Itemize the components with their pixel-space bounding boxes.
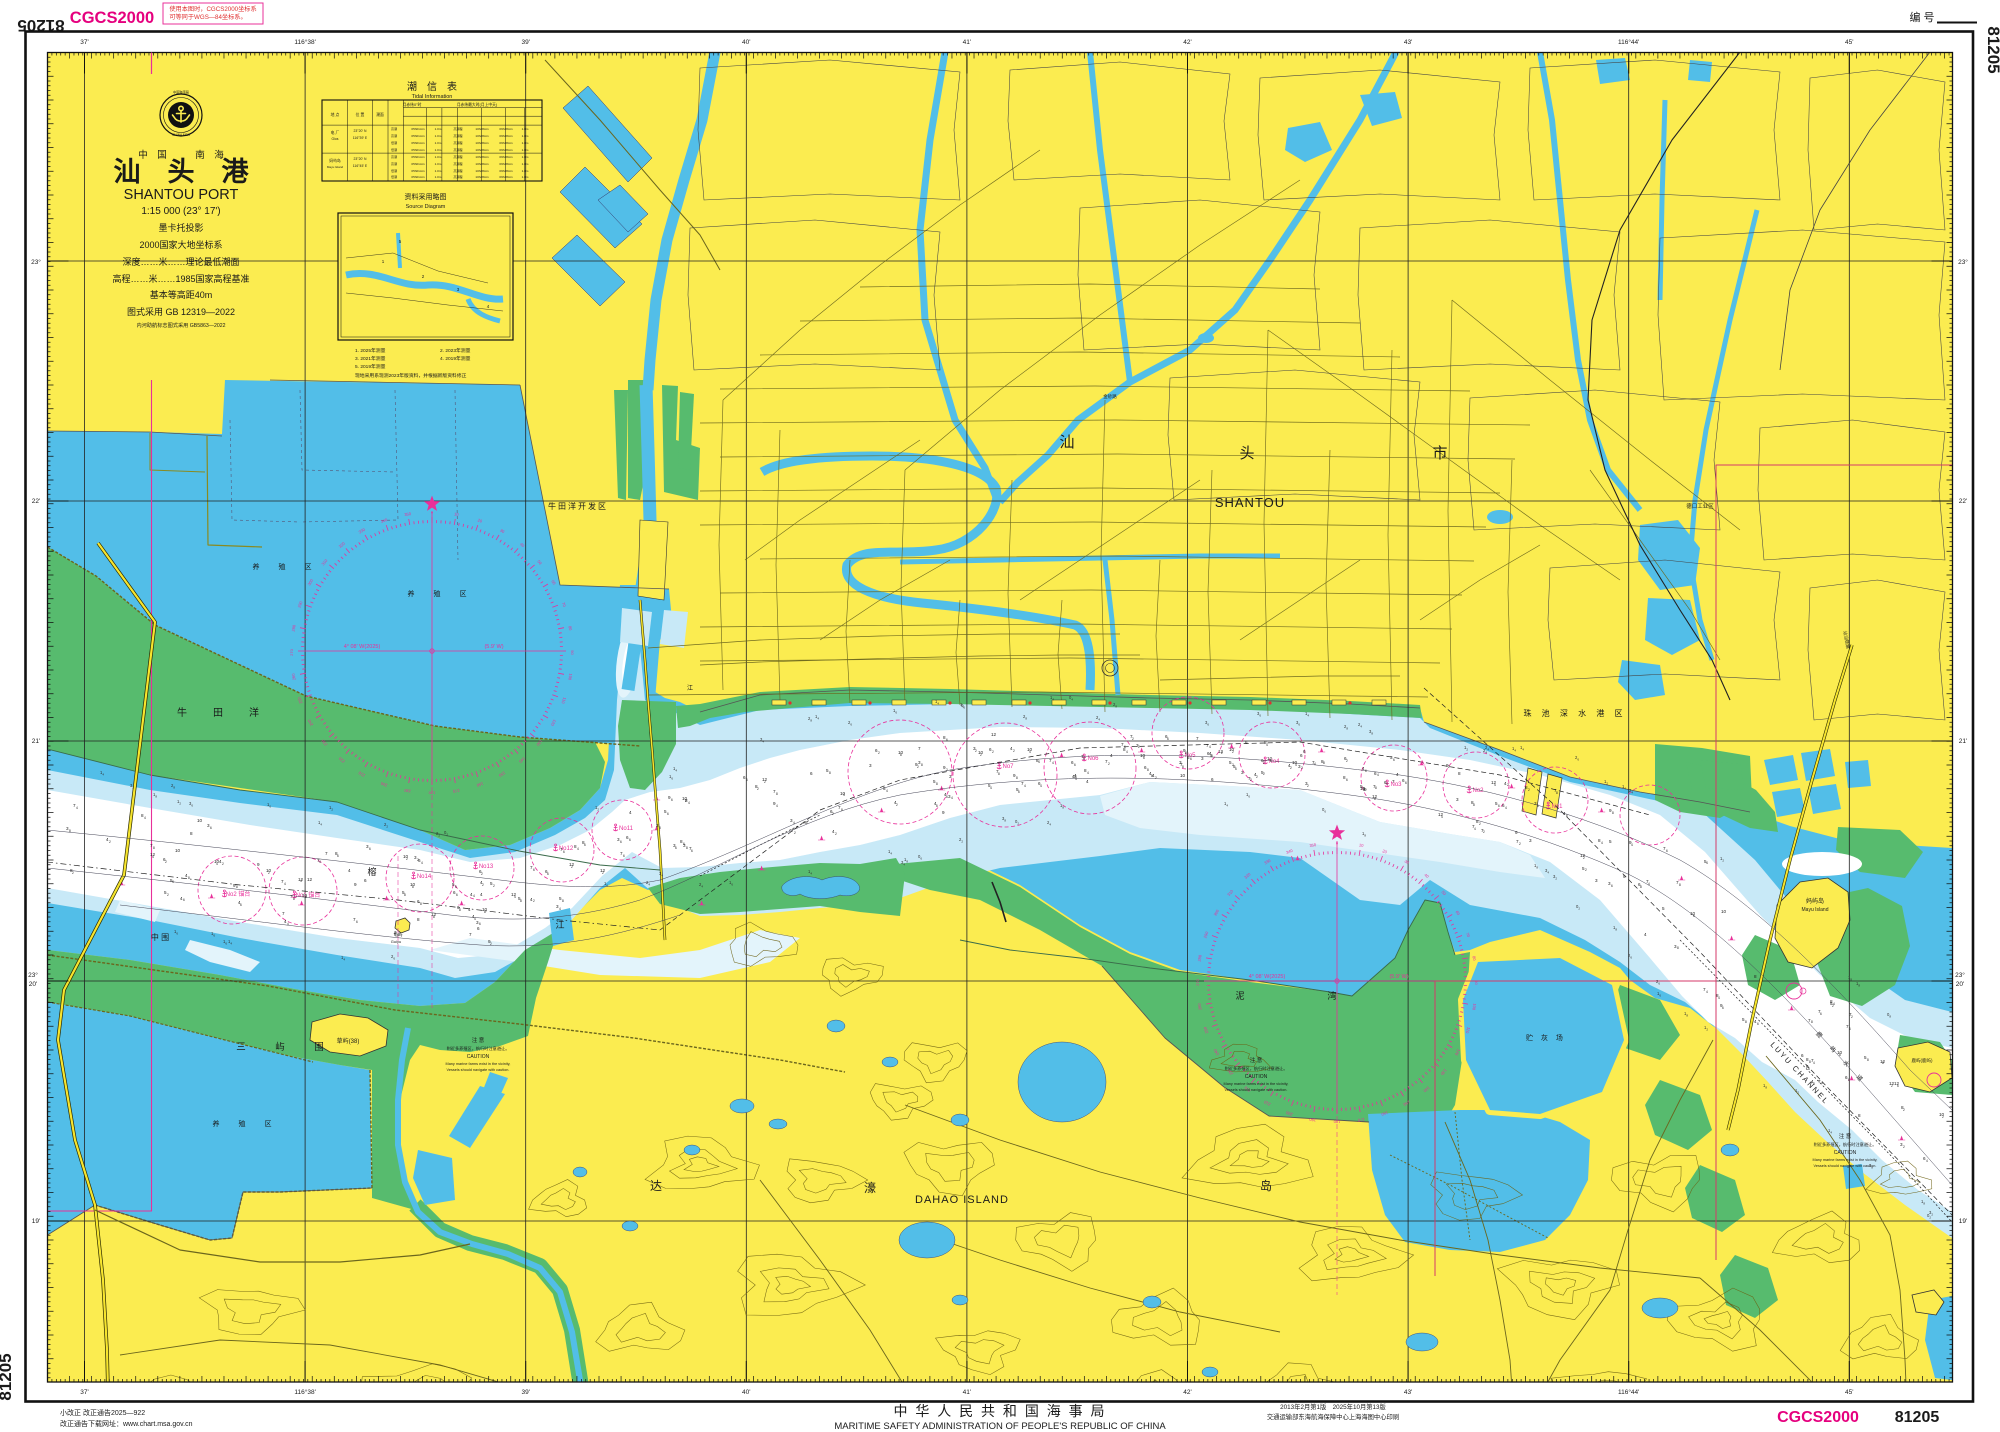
svg-text:6: 6 bbox=[1722, 1006, 1724, 1010]
svg-text:高潮程: 高潮程 bbox=[453, 154, 462, 159]
svg-text:4: 4 bbox=[1266, 743, 1268, 747]
svg-text:10: 10 bbox=[197, 818, 203, 823]
svg-text:编 号: 编 号 bbox=[1909, 10, 1934, 24]
svg-text:8: 8 bbox=[841, 808, 843, 812]
svg-text:23°20' N: 23°20' N bbox=[354, 157, 367, 161]
svg-text:8: 8 bbox=[1754, 974, 1757, 979]
svg-text:39': 39' bbox=[521, 39, 529, 46]
svg-text:5: 5 bbox=[805, 820, 808, 825]
svg-text:4: 4 bbox=[1441, 815, 1443, 819]
svg-text:1.0m: 1.0m bbox=[435, 148, 442, 152]
svg-text:中国海事局: 中国海事局 bbox=[173, 90, 189, 95]
svg-text:4: 4 bbox=[1210, 754, 1212, 758]
svg-text:No6: No6 bbox=[1087, 756, 1099, 762]
svg-text:8: 8 bbox=[1323, 761, 1325, 765]
svg-text:交通运输部东海航海保障中心上海海图中心印刷: 交通运输部东海航海保障中心上海海图中心印刷 bbox=[1267, 1412, 1399, 1421]
svg-text:使用本图时，CGCS2000坐标系: 使用本图时，CGCS2000坐标系 bbox=[169, 5, 256, 13]
svg-text:Tidal Information: Tidal Information bbox=[412, 94, 453, 100]
svg-text:10h28min: 10h28min bbox=[475, 162, 489, 166]
svg-text:116°45' E: 116°45' E bbox=[353, 164, 368, 168]
svg-text:4: 4 bbox=[1087, 771, 1089, 775]
svg-text:6: 6 bbox=[691, 849, 693, 853]
svg-text:8: 8 bbox=[900, 753, 902, 757]
svg-text:1.3m: 1.3m bbox=[522, 169, 529, 173]
svg-text:6: 6 bbox=[1124, 745, 1126, 749]
svg-text:09h48min: 09h48min bbox=[499, 134, 513, 138]
svg-text:附近多养殖区，航行时注意避让。: 附近多养殖区，航行时注意避让。 bbox=[1814, 1141, 1877, 1148]
svg-text:4: 4 bbox=[1631, 843, 1633, 847]
svg-text:养 殖 区: 养 殖 区 bbox=[213, 1119, 278, 1128]
svg-text:2: 2 bbox=[1250, 778, 1252, 782]
svg-text:81205: 81205 bbox=[1895, 1409, 1940, 1426]
svg-text:9: 9 bbox=[354, 882, 357, 887]
svg-text:附近多养殖区，航行时注意避让。: 附近多养殖区，航行时注意避让。 bbox=[1225, 1065, 1288, 1072]
svg-text:3: 3 bbox=[949, 774, 952, 779]
svg-text:4: 4 bbox=[559, 907, 561, 911]
svg-text:23°: 23° bbox=[1955, 971, 1965, 979]
svg-text:4: 4 bbox=[1110, 753, 1113, 758]
svg-text:8: 8 bbox=[417, 917, 420, 922]
svg-text:2: 2 bbox=[1891, 1084, 1893, 1088]
svg-text:江: 江 bbox=[687, 685, 693, 692]
svg-text:10: 10 bbox=[1721, 909, 1727, 914]
svg-text:7: 7 bbox=[325, 851, 328, 856]
svg-text:8: 8 bbox=[1083, 757, 1085, 761]
svg-text:8: 8 bbox=[459, 908, 461, 912]
svg-text:CHINA MSA: CHINA MSA bbox=[172, 133, 190, 137]
svg-text:4: 4 bbox=[1126, 750, 1128, 754]
svg-text:2: 2 bbox=[878, 751, 880, 755]
svg-text:1:15 000 (23° 17'): 1:15 000 (23° 17') bbox=[141, 206, 220, 217]
svg-text:6: 6 bbox=[936, 804, 938, 808]
svg-text:8: 8 bbox=[1882, 1061, 1884, 1065]
svg-text:现地采用系现测2023年版资料，并根据新版资料修正: 现地采用系现测2023年版资料，并根据新版资料修正 bbox=[355, 372, 467, 379]
svg-text:05h01min: 05h01min bbox=[411, 148, 425, 152]
svg-text:6: 6 bbox=[1303, 749, 1306, 754]
svg-text:6: 6 bbox=[667, 812, 669, 816]
svg-text:8: 8 bbox=[1640, 885, 1642, 889]
svg-text:6: 6 bbox=[810, 771, 813, 776]
svg-text:1.0m: 1.0m bbox=[435, 127, 442, 131]
svg-text:1.3m: 1.3m bbox=[522, 148, 529, 152]
svg-text:2: 2 bbox=[1942, 1115, 1944, 1119]
svg-text:中 华 人 民 共 和 国 海 事 局: 中 华 人 民 共 和 国 海 事 局 bbox=[893, 1403, 1106, 1419]
svg-text:41': 41' bbox=[963, 1389, 971, 1396]
svg-text:270: 270 bbox=[289, 648, 294, 655]
svg-text:高潮: 高潮 bbox=[391, 154, 397, 159]
svg-text:10h28min: 10h28min bbox=[475, 155, 489, 159]
svg-text:榕: 榕 bbox=[367, 866, 376, 877]
svg-text:7: 7 bbox=[282, 911, 285, 916]
svg-text:6: 6 bbox=[1018, 790, 1020, 794]
svg-text:8: 8 bbox=[1679, 883, 1681, 887]
svg-text:8: 8 bbox=[1016, 776, 1018, 780]
svg-text:6: 6 bbox=[210, 826, 212, 830]
svg-text:4: 4 bbox=[1386, 782, 1388, 786]
svg-text:42': 42' bbox=[1183, 1389, 1191, 1396]
svg-text:地 点: 地 点 bbox=[331, 112, 340, 117]
svg-text:头: 头 bbox=[1239, 445, 1254, 462]
svg-text:9: 9 bbox=[257, 862, 260, 867]
svg-text:1. 2025年测量: 1. 2025年测量 bbox=[355, 347, 386, 354]
svg-text:4° 08' W(2025): 4° 08' W(2025) bbox=[1249, 974, 1286, 980]
svg-text:养 殖 区: 养 殖 区 bbox=[253, 562, 318, 571]
svg-text:4: 4 bbox=[1494, 783, 1496, 787]
svg-text:高潮程: 高潮程 bbox=[453, 168, 462, 173]
svg-text:5. 2019年测量: 5. 2019年测量 bbox=[355, 363, 386, 370]
svg-text:6: 6 bbox=[547, 872, 549, 876]
svg-text:2: 2 bbox=[794, 831, 796, 835]
svg-text:37': 37' bbox=[80, 39, 88, 46]
svg-text:Guiyu: Guiyu bbox=[391, 939, 401, 944]
svg-text:草屿(38): 草屿(38) bbox=[337, 1037, 360, 1045]
svg-text:05h01min: 05h01min bbox=[411, 175, 425, 179]
svg-text:Mayu Island: Mayu Island bbox=[327, 165, 344, 169]
svg-text:改正通告下载网址：www.chart.msa.gov.cn: 改正通告下载网址：www.chart.msa.gov.cn bbox=[60, 1419, 193, 1428]
svg-text:8: 8 bbox=[404, 893, 406, 897]
svg-text:8: 8 bbox=[1473, 803, 1475, 807]
svg-text:4: 4 bbox=[1706, 990, 1708, 994]
svg-text:8: 8 bbox=[998, 772, 1000, 776]
svg-text:8: 8 bbox=[412, 885, 414, 889]
svg-text:6: 6 bbox=[1167, 737, 1169, 741]
svg-text:金砂路: 金砂路 bbox=[1103, 393, 1117, 400]
svg-text:Vessels should navigate with c: Vessels should navigate with caution. bbox=[1814, 1164, 1877, 1168]
svg-text:270: 270 bbox=[1195, 978, 1200, 985]
svg-text:5: 5 bbox=[1609, 839, 1612, 844]
svg-text:8: 8 bbox=[1848, 1078, 1850, 1082]
svg-text:8: 8 bbox=[293, 897, 295, 901]
svg-text:2: 2 bbox=[1583, 856, 1585, 860]
svg-text:2: 2 bbox=[72, 871, 74, 875]
svg-text:2: 2 bbox=[975, 749, 977, 753]
svg-text:2: 2 bbox=[1256, 775, 1258, 779]
svg-text:22': 22' bbox=[1959, 498, 1967, 505]
svg-text:6: 6 bbox=[1849, 1027, 1851, 1031]
svg-text:20': 20' bbox=[1956, 981, 1964, 988]
svg-text:高潮程: 高潮程 bbox=[453, 147, 462, 152]
svg-text:6: 6 bbox=[1498, 804, 1500, 808]
svg-text:4: 4 bbox=[1024, 784, 1026, 788]
svg-text:8: 8 bbox=[1813, 1082, 1815, 1086]
svg-text:8: 8 bbox=[776, 792, 778, 796]
svg-text:泥: 泥 bbox=[1235, 991, 1244, 1001]
svg-text:1.3m: 1.3m bbox=[522, 141, 529, 145]
svg-text:4: 4 bbox=[480, 892, 483, 897]
svg-text:4: 4 bbox=[1040, 784, 1042, 788]
svg-text:10h28min: 10h28min bbox=[475, 169, 489, 173]
svg-text:8: 8 bbox=[153, 846, 155, 850]
svg-text:2. 2023年测量: 2. 2023年测量 bbox=[440, 347, 471, 354]
svg-text:6: 6 bbox=[1211, 777, 1214, 782]
svg-text:CAUTION: CAUTION bbox=[1245, 1074, 1268, 1080]
svg-text:2: 2 bbox=[764, 780, 766, 784]
svg-text:2: 2 bbox=[268, 871, 270, 875]
svg-text:8: 8 bbox=[520, 899, 522, 903]
svg-text:2: 2 bbox=[1903, 1145, 1905, 1149]
svg-text:妈屿岛: 妈屿岛 bbox=[329, 158, 341, 163]
svg-text:6: 6 bbox=[746, 778, 748, 782]
svg-text:4: 4 bbox=[1718, 996, 1720, 1000]
svg-text:09h48min: 09h48min bbox=[499, 169, 513, 173]
svg-text:8: 8 bbox=[1182, 765, 1184, 769]
svg-text:2: 2 bbox=[917, 765, 919, 769]
svg-text:8: 8 bbox=[921, 763, 923, 767]
svg-text:低潮: 低潮 bbox=[391, 174, 397, 179]
svg-text:DAHAO ISLAND: DAHAO ISLAND bbox=[915, 1194, 1009, 1206]
svg-text:2: 2 bbox=[1108, 762, 1110, 766]
svg-text:6: 6 bbox=[1897, 1084, 1899, 1088]
svg-text:2: 2 bbox=[406, 857, 408, 861]
svg-text:2: 2 bbox=[167, 893, 169, 897]
svg-text:6: 6 bbox=[479, 922, 481, 926]
svg-text:7: 7 bbox=[469, 932, 472, 937]
svg-text:深度……米……理论最低潮面: 深度……米……理论最低潮面 bbox=[122, 256, 239, 267]
svg-text:2: 2 bbox=[685, 799, 687, 803]
svg-text:4: 4 bbox=[144, 816, 146, 820]
svg-text:6: 6 bbox=[369, 847, 371, 851]
svg-text:05h01min: 05h01min bbox=[411, 141, 425, 145]
svg-text:9: 9 bbox=[1623, 874, 1626, 879]
svg-text:21': 21' bbox=[32, 738, 40, 745]
svg-text:2: 2 bbox=[757, 787, 759, 791]
svg-text:8: 8 bbox=[936, 782, 938, 786]
svg-text:4: 4 bbox=[843, 793, 845, 797]
svg-text:6: 6 bbox=[183, 898, 185, 902]
svg-text:4: 4 bbox=[1813, 1061, 1815, 1065]
svg-text:4: 4 bbox=[1706, 861, 1708, 865]
svg-text:6: 6 bbox=[1270, 759, 1272, 763]
svg-text:2: 2 bbox=[832, 812, 834, 816]
svg-text:4: 4 bbox=[688, 801, 690, 805]
svg-text:6: 6 bbox=[1537, 804, 1539, 808]
svg-text:4: 4 bbox=[397, 933, 399, 937]
svg-text:高程……米……1985国家高程基准: 高程……米……1985国家高程基准 bbox=[112, 273, 249, 284]
svg-text:2: 2 bbox=[1221, 751, 1223, 755]
svg-text:37': 37' bbox=[80, 1389, 88, 1396]
svg-text:116°38': 116°38' bbox=[294, 38, 315, 46]
svg-text:鹿屿(鹿屿): 鹿屿(鹿屿) bbox=[1912, 1057, 1933, 1064]
svg-text:注 意: 注 意 bbox=[472, 1036, 485, 1044]
svg-text:6: 6 bbox=[1143, 756, 1145, 760]
svg-text:8: 8 bbox=[1147, 768, 1149, 772]
svg-text:6: 6 bbox=[946, 795, 948, 799]
svg-text:1.3m: 1.3m bbox=[522, 162, 529, 166]
svg-text:8: 8 bbox=[686, 846, 688, 850]
svg-text:8: 8 bbox=[420, 902, 422, 906]
svg-text:23°: 23° bbox=[1958, 258, 1968, 266]
svg-text:4: 4 bbox=[76, 806, 78, 810]
svg-text:4: 4 bbox=[776, 804, 778, 808]
svg-text:基本等高距40m: 基本等高距40m bbox=[150, 289, 213, 300]
svg-text:4: 4 bbox=[990, 786, 992, 790]
svg-text:10h28min: 10h28min bbox=[475, 175, 489, 179]
svg-text:市: 市 bbox=[1432, 445, 1447, 462]
svg-text:汕 头 港: 汕 头 港 bbox=[114, 157, 250, 187]
svg-text:1.0m: 1.0m bbox=[435, 175, 442, 179]
svg-text:牛 田 洋: 牛 田 洋 bbox=[177, 706, 267, 719]
svg-text:2: 2 bbox=[1528, 788, 1530, 792]
svg-text:1.3m: 1.3m bbox=[522, 155, 529, 159]
svg-text:高潮程: 高潮程 bbox=[453, 126, 462, 131]
svg-text:6: 6 bbox=[456, 893, 458, 897]
svg-text:4: 4 bbox=[1086, 779, 1089, 784]
svg-text:10h28min: 10h28min bbox=[475, 141, 489, 145]
svg-text:可等同于WGS—84坐标系。: 可等同于WGS—84坐标系。 bbox=[169, 13, 246, 21]
svg-text:6: 6 bbox=[240, 903, 242, 907]
svg-text:6: 6 bbox=[1190, 757, 1192, 761]
svg-text:2: 2 bbox=[1483, 830, 1485, 834]
svg-text:No1: No1 bbox=[1551, 804, 1563, 810]
svg-text:3: 3 bbox=[1201, 756, 1204, 761]
svg-text:6: 6 bbox=[671, 798, 673, 802]
svg-text:4: 4 bbox=[1505, 806, 1507, 810]
svg-text:1.0m: 1.0m bbox=[435, 169, 442, 173]
svg-text:2: 2 bbox=[992, 750, 994, 754]
svg-text:珠 池 深 水 港 区: 珠 池 深 水 港 区 bbox=[1523, 708, 1626, 718]
svg-text:10h28min: 10h28min bbox=[475, 148, 489, 152]
svg-text:3: 3 bbox=[1456, 797, 1459, 802]
svg-text:05h01min: 05h01min bbox=[411, 134, 425, 138]
svg-text:6: 6 bbox=[629, 838, 631, 842]
svg-text:2: 2 bbox=[1307, 784, 1309, 788]
svg-text:4: 4 bbox=[287, 922, 289, 926]
svg-text:6: 6 bbox=[1666, 849, 1668, 853]
svg-text:9: 9 bbox=[942, 810, 945, 815]
svg-text:注 意: 注 意 bbox=[1839, 1132, 1852, 1140]
svg-text:2: 2 bbox=[165, 860, 167, 864]
svg-text:7: 7 bbox=[1392, 779, 1395, 784]
svg-text:8: 8 bbox=[1858, 1113, 1861, 1118]
svg-text:4: 4 bbox=[1644, 932, 1647, 937]
svg-text:小改正 改正通告2025—922: 小改正 改正通告2025—922 bbox=[60, 1408, 145, 1417]
svg-text:8: 8 bbox=[1185, 751, 1187, 755]
svg-text:05h01min: 05h01min bbox=[411, 169, 425, 173]
svg-text:2: 2 bbox=[1851, 1015, 1853, 1019]
svg-text:4: 4 bbox=[319, 860, 321, 864]
svg-text:2: 2 bbox=[1138, 745, 1140, 749]
svg-text:2: 2 bbox=[602, 871, 604, 875]
svg-text:7: 7 bbox=[918, 746, 921, 751]
svg-text:4: 4 bbox=[577, 847, 579, 851]
svg-text:8: 8 bbox=[562, 899, 564, 903]
svg-text:6: 6 bbox=[563, 850, 565, 854]
svg-text:6: 6 bbox=[1405, 781, 1407, 785]
svg-text:4: 4 bbox=[1038, 760, 1040, 764]
svg-text:MARITIME SAFETY ADMINISTRATION: MARITIME SAFETY ADMINISTRATION OF PEOPLE… bbox=[834, 1421, 1166, 1432]
svg-text:6: 6 bbox=[623, 854, 625, 858]
svg-text:岛: 岛 bbox=[1260, 1178, 1272, 1193]
svg-text:180: 180 bbox=[1333, 1120, 1340, 1125]
svg-text:05h01min: 05h01min bbox=[411, 155, 425, 159]
svg-text:2: 2 bbox=[1903, 1108, 1905, 1112]
svg-text:3: 3 bbox=[869, 763, 872, 768]
svg-text:养 殖 区: 养 殖 区 bbox=[408, 589, 473, 598]
svg-text:2: 2 bbox=[109, 840, 111, 844]
svg-text:德口工业区: 德口工业区 bbox=[1686, 502, 1714, 510]
svg-text:23°20' N: 23°20' N bbox=[354, 129, 367, 133]
svg-text:2013年2月第1版 2025年10月第13版: 2013年2月第1版 2025年10月第13版 bbox=[1280, 1402, 1386, 1411]
svg-text:8: 8 bbox=[1612, 811, 1614, 815]
svg-text:10: 10 bbox=[175, 848, 181, 853]
svg-text:1.0m: 1.0m bbox=[435, 162, 442, 166]
svg-text:6: 6 bbox=[533, 868, 535, 872]
svg-text:2: 2 bbox=[222, 862, 224, 866]
svg-text:81205: 81205 bbox=[0, 1353, 15, 1400]
svg-text:4: 4 bbox=[300, 879, 302, 883]
svg-text:4: 4 bbox=[473, 894, 475, 898]
svg-text:3: 3 bbox=[1595, 878, 1598, 883]
svg-text:Gios: Gios bbox=[332, 137, 339, 141]
svg-text:116°38': 116°38' bbox=[294, 1388, 315, 1396]
svg-text:6: 6 bbox=[455, 885, 457, 889]
svg-text:6: 6 bbox=[1365, 769, 1367, 773]
svg-text:高潮: 高潮 bbox=[391, 133, 397, 138]
svg-text:6: 6 bbox=[1801, 1053, 1804, 1058]
svg-text:8: 8 bbox=[1151, 774, 1153, 778]
svg-text:Vessels should navigate with c: Vessels should navigate with caution. bbox=[447, 1068, 510, 1072]
svg-text:Source Diagram: Source Diagram bbox=[406, 204, 446, 210]
svg-text:低潮: 低潮 bbox=[391, 147, 397, 152]
svg-text:2: 2 bbox=[980, 753, 982, 757]
svg-text:05h01min: 05h01min bbox=[411, 162, 425, 166]
svg-text:8: 8 bbox=[829, 771, 831, 775]
svg-text:2: 2 bbox=[1346, 759, 1348, 763]
svg-text:潮 信 表: 潮 信 表 bbox=[407, 80, 457, 93]
svg-text:4: 4 bbox=[886, 789, 888, 793]
svg-text:4° 08' W(2025): 4° 08' W(2025) bbox=[344, 644, 381, 650]
svg-text:8: 8 bbox=[1677, 946, 1679, 950]
svg-text:8: 8 bbox=[188, 876, 190, 880]
svg-text:3: 3 bbox=[1241, 770, 1244, 775]
svg-text:汕: 汕 bbox=[1059, 434, 1074, 451]
svg-text:19': 19' bbox=[32, 1218, 40, 1225]
svg-text:8: 8 bbox=[659, 826, 661, 830]
svg-text:43': 43' bbox=[1404, 39, 1412, 46]
svg-text:2: 2 bbox=[1448, 765, 1450, 769]
svg-text:高潮程: 高潮程 bbox=[453, 174, 462, 179]
svg-text:4: 4 bbox=[172, 880, 174, 884]
svg-text:8: 8 bbox=[433, 915, 435, 919]
svg-text:40': 40' bbox=[742, 1389, 750, 1396]
svg-text:90: 90 bbox=[570, 650, 575, 655]
svg-text:CGCS2000: CGCS2000 bbox=[1777, 1409, 1859, 1426]
svg-text:81205: 81205 bbox=[1984, 26, 2000, 73]
svg-text:8: 8 bbox=[1375, 786, 1377, 790]
svg-text:2: 2 bbox=[835, 832, 837, 836]
svg-text:180: 180 bbox=[428, 791, 435, 796]
svg-text:1.3m: 1.3m bbox=[522, 175, 529, 179]
svg-text:3: 3 bbox=[1529, 838, 1532, 843]
svg-text:05h01min: 05h01min bbox=[411, 127, 425, 131]
svg-text:116°44': 116°44' bbox=[1618, 1388, 1639, 1396]
svg-text:9: 9 bbox=[1364, 787, 1367, 792]
svg-text:8: 8 bbox=[1374, 797, 1376, 801]
svg-text:2: 2 bbox=[571, 865, 573, 869]
svg-text:三 屿 围: 三 屿 围 bbox=[236, 1041, 334, 1053]
svg-text:6: 6 bbox=[675, 846, 677, 850]
svg-text:4: 4 bbox=[1377, 773, 1379, 777]
svg-text:6: 6 bbox=[337, 854, 339, 858]
svg-text:6: 6 bbox=[477, 926, 480, 931]
svg-text:8: 8 bbox=[190, 831, 193, 836]
svg-text:2: 2 bbox=[1155, 776, 1157, 780]
svg-text:2: 2 bbox=[1232, 750, 1234, 754]
svg-text:4: 4 bbox=[1295, 763, 1297, 767]
svg-text:1.0m: 1.0m bbox=[435, 141, 442, 145]
svg-text:43': 43' bbox=[1404, 1389, 1412, 1396]
svg-text:2: 2 bbox=[417, 858, 419, 862]
